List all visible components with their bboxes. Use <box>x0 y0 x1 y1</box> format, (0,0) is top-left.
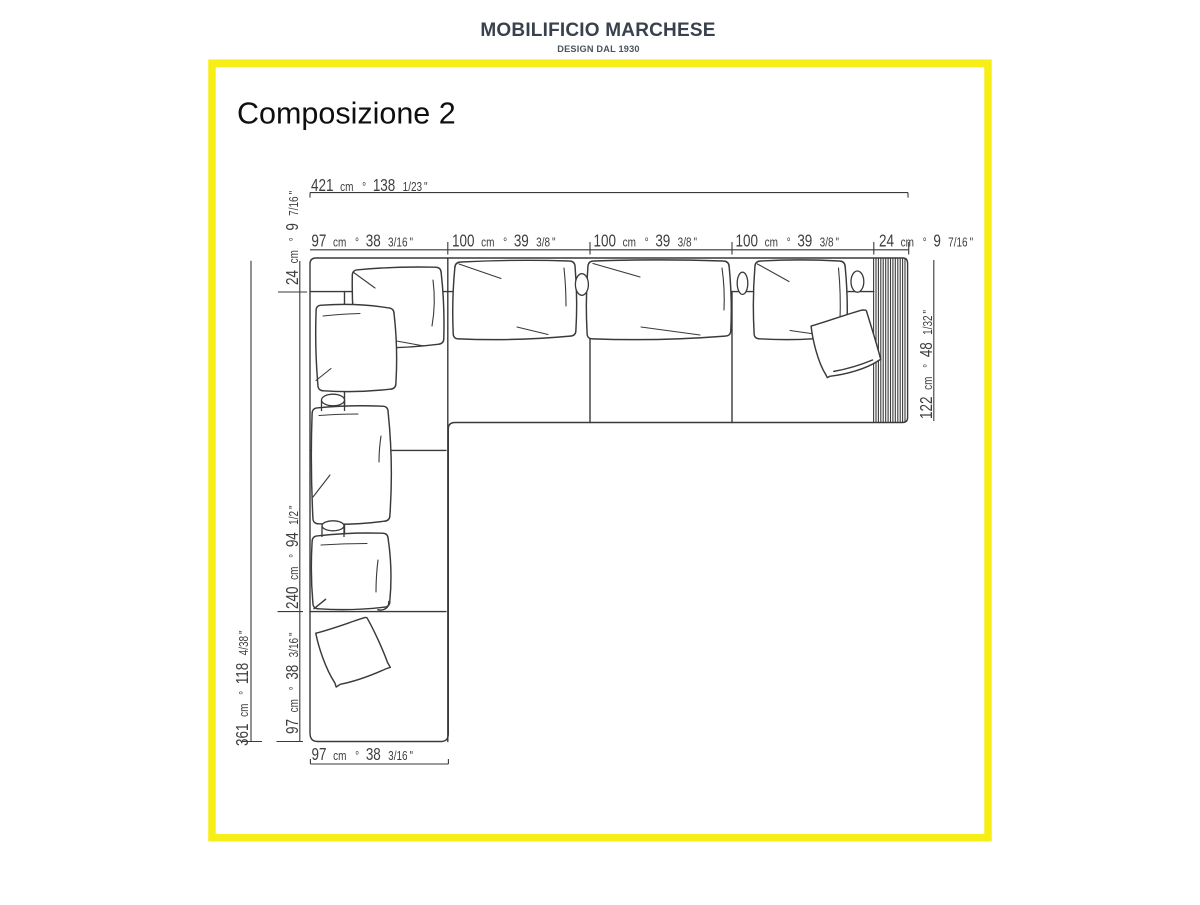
svg-text:MOBILIFICIO MARCHESE: MOBILIFICIO MARCHESE <box>480 20 715 41</box>
svg-text:DESIGN DAL 1930: DESIGN DAL 1930 <box>557 44 639 54</box>
svg-text:Composizione 2: Composizione 2 <box>237 97 456 131</box>
